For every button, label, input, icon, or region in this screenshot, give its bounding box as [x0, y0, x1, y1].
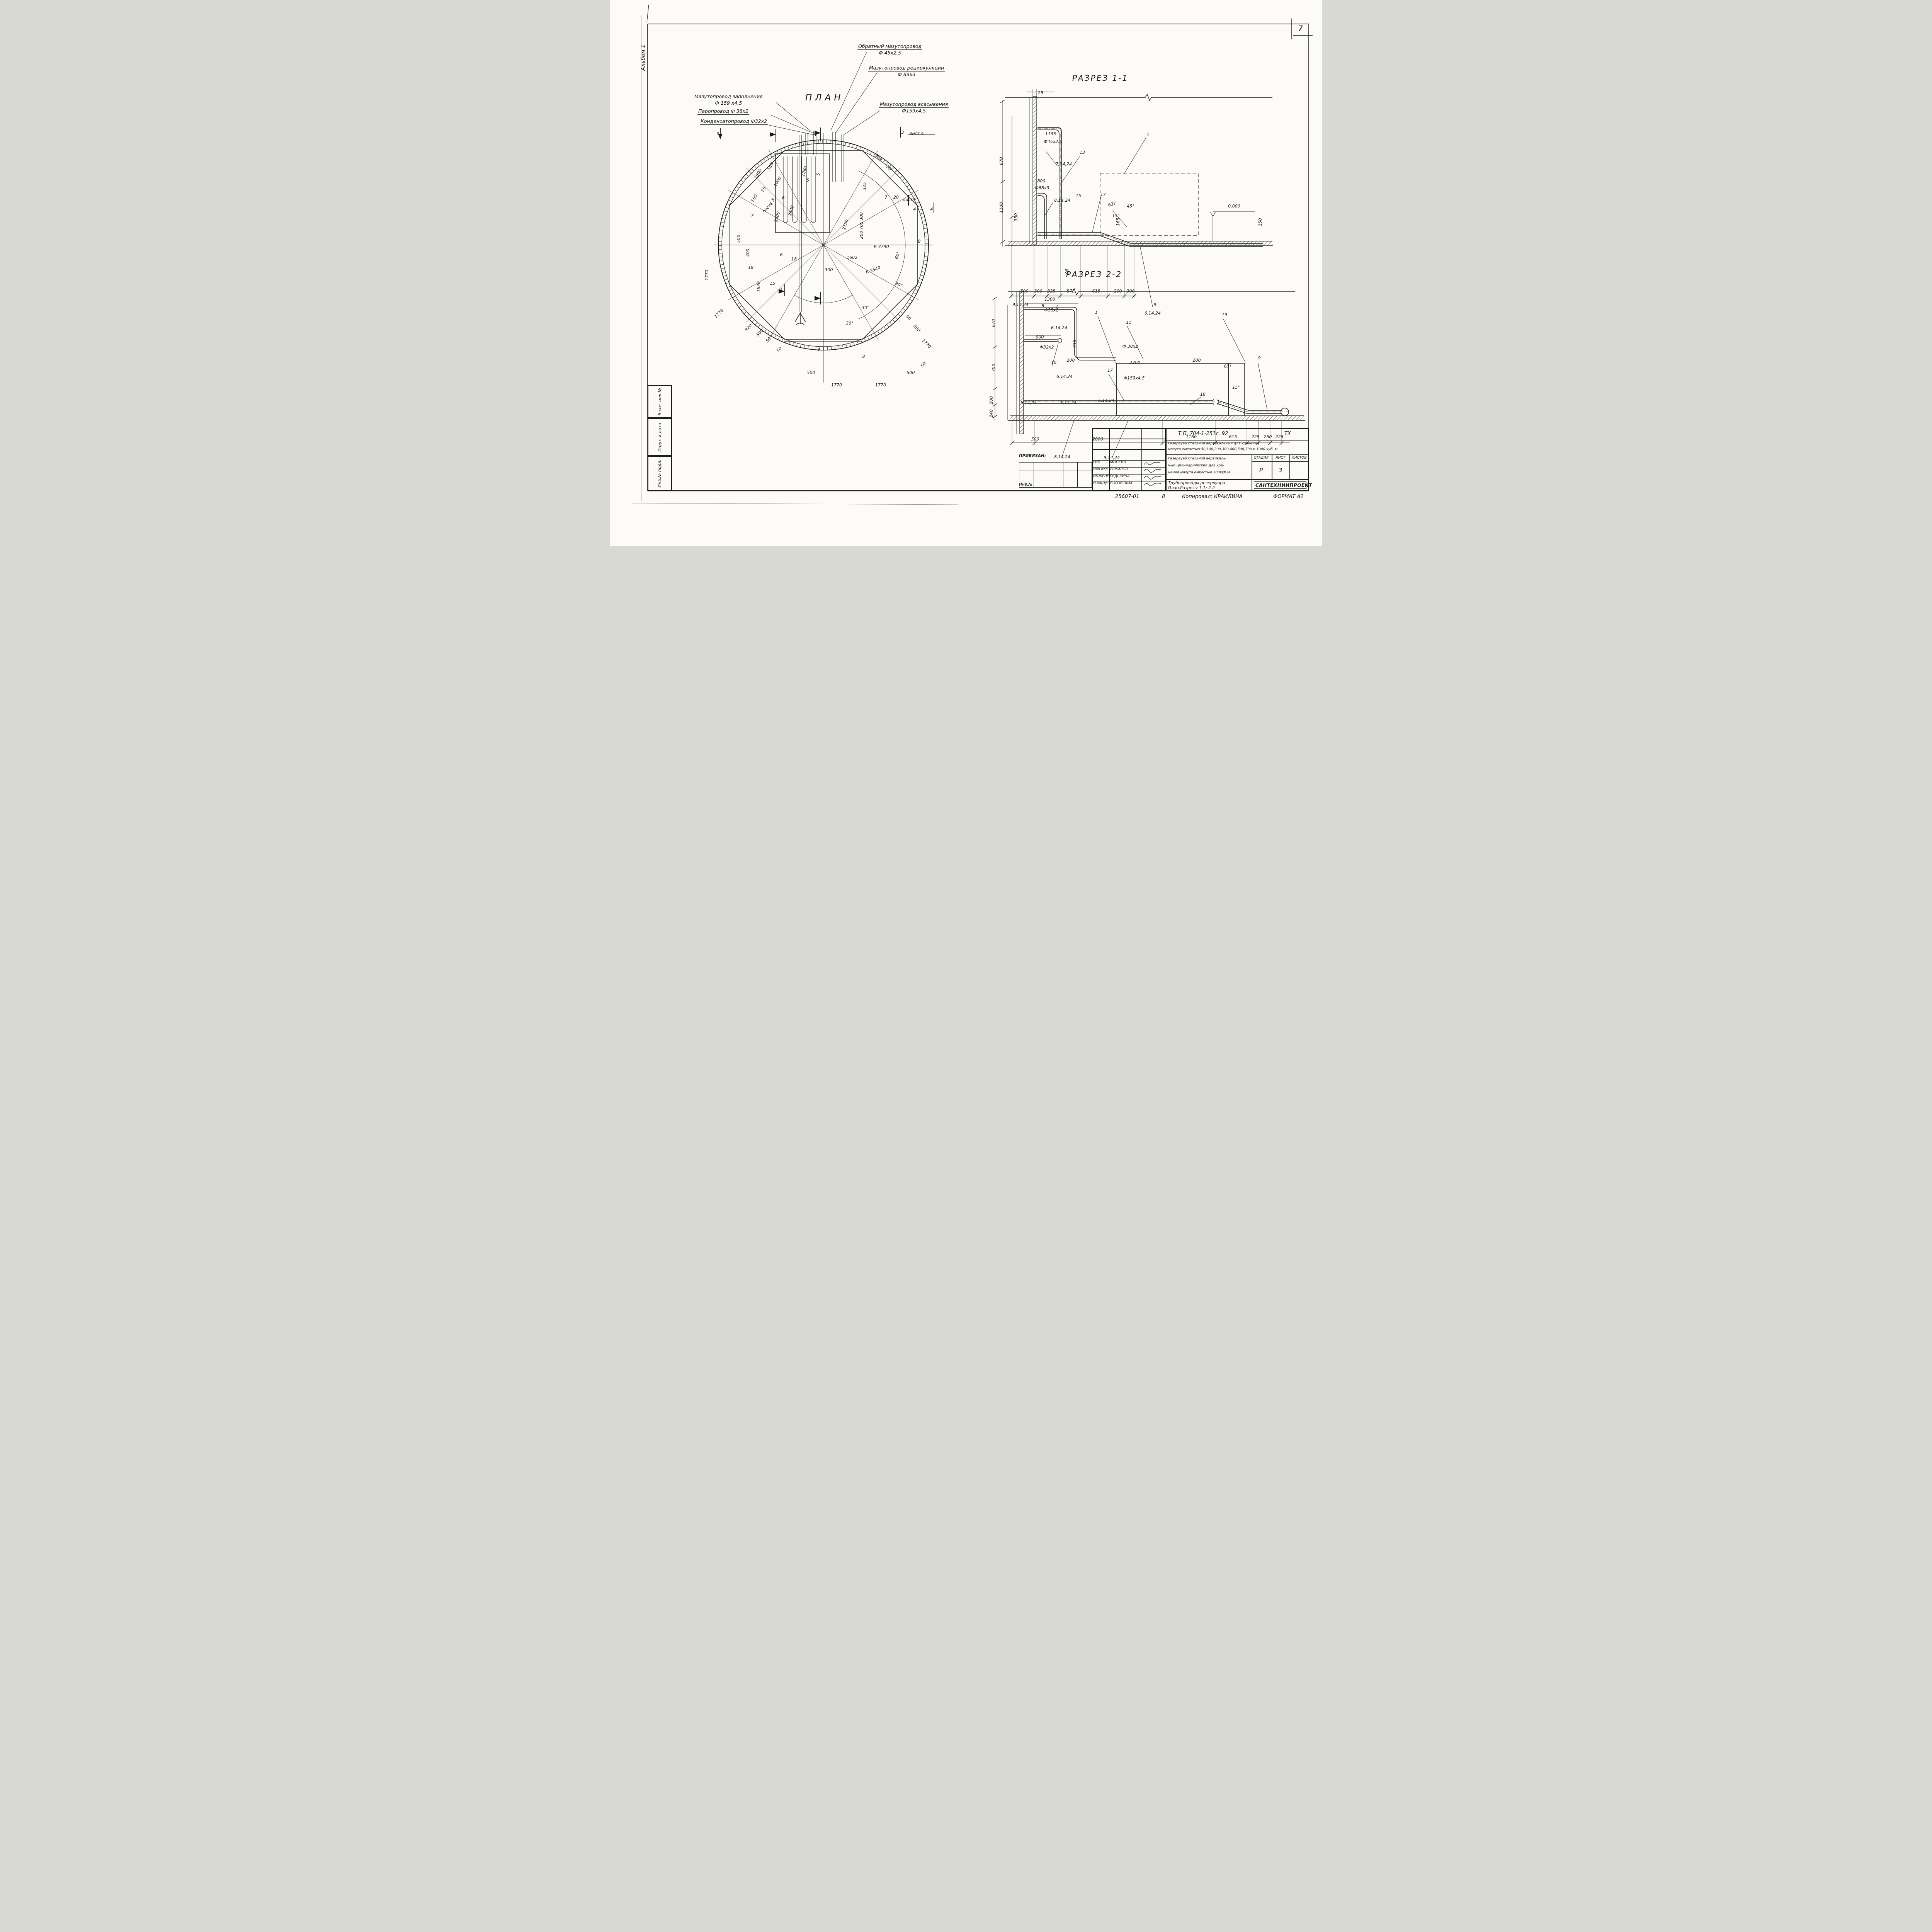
callout-condensate-name: Конденсатопровод Ф32x2: [700, 118, 768, 125]
dim-label: 1000: [772, 176, 782, 188]
dim-label: 1770: [704, 270, 709, 281]
dim-label: 200: [1193, 358, 1201, 363]
dim-label: 2: [770, 132, 773, 137]
dim-label: 30°: [895, 281, 903, 288]
dim-label: 300: [825, 267, 833, 272]
album-label: Альбом 1: [640, 44, 646, 71]
dim-label: 11: [1126, 320, 1131, 325]
dim-label: 4: [913, 207, 916, 212]
dim-label: 300: [1127, 289, 1135, 294]
dim-label: 200: [1067, 358, 1075, 363]
organization-name: САНТЕХНИИПРОЕКТ: [1255, 483, 1312, 488]
dim-label: 500: [807, 370, 815, 375]
dim-label: Ф159x4,5: [1124, 376, 1145, 381]
callout-steam-name: Паропровод Ф 38x2: [697, 108, 749, 115]
dim-label: 1620: [756, 281, 761, 292]
dim-label: 240: [989, 410, 994, 418]
plan-dimension-labels: 5001000126051600151505лист47300503253007…: [704, 130, 933, 388]
dim-label: 335: [1048, 289, 1056, 294]
dim-label: 736: [1072, 340, 1077, 348]
dim-label: 200: [989, 396, 994, 405]
dim-label: 920: [744, 323, 753, 332]
dim-label: 800: [1037, 179, 1046, 184]
dim-label: 15°: [1112, 213, 1120, 218]
dim-label: Ф 38x2: [1122, 344, 1138, 349]
dim-label: 17: [1100, 192, 1106, 197]
footer-order-number: 25607-01: [1115, 494, 1139, 500]
dim-label: 2: [780, 287, 782, 292]
dim-label: 200: [859, 231, 864, 239]
dim-label: 8: [862, 354, 865, 359]
dim-label: 3: [901, 130, 904, 135]
dim-label: 500: [1020, 289, 1029, 294]
doc-type: ТХ: [1284, 431, 1291, 437]
dim-label: лист4: [761, 201, 774, 214]
section1-dimension-labels: 251135Ф45x2,57,14,2413800Ф88x38,14,24151…: [999, 90, 1263, 309]
dim-label: 2156: [842, 219, 849, 230]
dim-label: 150: [1258, 218, 1263, 226]
subobject-line2: ный цилиндрический для хра-: [1168, 464, 1224, 468]
dim-label: 15: [760, 186, 767, 193]
callout-recirculation-name: Мазутопровод рециркуляции: [868, 65, 945, 71]
dim-label: 350: [1014, 213, 1019, 221]
dim-label: 45°: [1127, 204, 1134, 209]
drawing-sheet: 5001000126051600151505лист47300503253007…: [610, 0, 1322, 546]
dim-label: 6: [782, 196, 785, 201]
dim-label: 325: [862, 182, 867, 190]
person-role: ИНЖЕНЕР: [1093, 474, 1111, 478]
dim-label: 300: [1034, 289, 1043, 294]
dim-label: 50: [765, 336, 772, 344]
object-title-line1: Резервуар стальной вертикальный для хран…: [1168, 442, 1259, 446]
dim-label: 6,14,24: [1056, 374, 1073, 379]
doc-code: Т.П. 704-1-251с. 92: [1178, 431, 1228, 437]
section1-title: РАЗРЕЗ 1-1: [1072, 73, 1128, 83]
sheet-header: ЛИСТ: [1276, 456, 1285, 460]
side-stamp-cell-2: Подп. и дата: [648, 418, 672, 456]
dim-label: 500: [755, 328, 765, 338]
dim-label: 1770: [921, 338, 932, 349]
sheets-header: ЛИСТОВ: [1292, 456, 1307, 460]
dim-label: Ф38x2: [1044, 308, 1059, 313]
side-stamp-label-1: Взам. инв.№: [657, 388, 662, 415]
dim-label: 1: [1095, 310, 1098, 315]
dim-label: 15: [770, 281, 775, 286]
dim-label: 1135: [1045, 131, 1056, 136]
callout-condensate-line: Конденсатопровод Ф32x2: [700, 118, 768, 125]
person-name: РЕДЬКИНА: [1110, 474, 1129, 478]
stage-value: Р: [1259, 467, 1263, 474]
dim-label: 165: [1116, 218, 1121, 226]
dim-label: 5,14,24: [1098, 398, 1114, 403]
dim-label: 1300: [1044, 297, 1055, 302]
side-stamp-label-3: Инв.№ подл.: [657, 459, 662, 487]
dim-label: 7: [885, 195, 888, 200]
side-stamp-cell-1: Взам. инв.№: [648, 385, 672, 418]
footer-format: ФОРМАТ А2: [1273, 494, 1304, 500]
callout-filling-name: Мазутопровод заполнения: [694, 94, 764, 100]
callout-return-size: Ф 45x2,5: [857, 50, 922, 56]
dim-label: 700: [859, 222, 864, 230]
stage-header: СТАДИЯ: [1254, 456, 1269, 460]
dim-label: 8: [918, 239, 921, 244]
dim-label: 6,14,24: [1145, 311, 1161, 316]
callout-recirculation-size: Ф 89x3: [868, 71, 945, 77]
object-title-line2: мазута емкостью 50,100,200,300,400,500,7…: [1168, 447, 1279, 451]
dim-label: 500: [766, 162, 775, 171]
person-name: МЫСКИН: [1110, 461, 1126, 464]
dim-label: 15: [1076, 193, 1081, 198]
side-stamp-label-2: Подп. и дата: [657, 423, 662, 452]
dim-label: 637: [1107, 201, 1117, 208]
dim-label: 1: [815, 132, 817, 137]
callout-return-name: Обратный мазутопровод: [857, 43, 922, 50]
drawing-title-line1: Трубопроводы резервуара: [1168, 481, 1225, 485]
dim-label: 60°: [894, 251, 901, 260]
dim-label: 900: [1036, 335, 1044, 340]
callout-suction-name: Мазутопровод всасывания: [879, 101, 949, 108]
dim-label: 500: [1031, 437, 1039, 442]
dim-label: 1: [1147, 132, 1150, 137]
dim-label: 700: [991, 364, 996, 372]
subobject-line1: Резервуар стальной вертикаль-: [1168, 457, 1226, 461]
dim-label: 5,14,24: [1020, 400, 1037, 405]
dim-label: 1: [815, 296, 817, 301]
dim-label: 15°: [1232, 385, 1240, 390]
dim-label: 8,14,24: [1054, 198, 1070, 203]
dim-label: 18: [791, 257, 797, 262]
dim-label: 2300: [1129, 360, 1140, 365]
dim-label: 19: [1222, 312, 1227, 317]
dim-label: 1100: [999, 202, 1004, 213]
drawing-title-line2: План.Разрезы 1-1; 2-2: [1168, 486, 1215, 490]
dim-label: 9: [1258, 355, 1261, 361]
dim-label: 5: [807, 178, 810, 183]
dim-label: 30°: [846, 321, 854, 326]
dim-label: R 3540: [865, 265, 881, 275]
sheet-value: 3: [1279, 467, 1282, 474]
dim-label: Ф45x2,5: [1044, 139, 1062, 144]
person-role: ГИП: [1093, 461, 1100, 464]
dim-label: 10: [1051, 360, 1056, 365]
callout-return-line: Обратный мазутопровод Ф 45x2,5: [857, 43, 922, 56]
dim-label: 300: [874, 153, 883, 162]
dim-label: 1770: [875, 383, 886, 388]
dim-label: 5,14,24: [1060, 400, 1077, 405]
dim-label: 500: [736, 235, 741, 243]
callout-steam-line: Паропровод Ф 38x2: [697, 108, 749, 115]
dim-label: 25: [1038, 90, 1043, 95]
dim-label: 5: [815, 172, 821, 176]
dim-label: 20: [893, 195, 899, 200]
dim-label: 3: [717, 131, 719, 136]
dim-label: 6,14,24: [1051, 325, 1067, 330]
dim-label: 670: [999, 157, 1004, 165]
dim-label: R 3790: [874, 244, 889, 249]
dim-label: 300: [859, 213, 864, 221]
callout-filling-size: Ф 159 x4,5: [694, 100, 764, 106]
person-name: ЕРМИЛОВ: [1110, 468, 1128, 471]
dim-label: 13: [1080, 150, 1085, 155]
dim-label: 1770: [713, 308, 724, 319]
dim-label: Ф32x2: [1040, 345, 1054, 350]
dim-label: 50: [776, 346, 783, 353]
linked-label: ПРИВЯЗАН:: [1019, 454, 1046, 458]
dim-label: 615: [1092, 289, 1100, 294]
dim-label: лист4: [902, 197, 916, 202]
dim-label: 18: [1200, 392, 1206, 397]
dim-label: 50: [920, 361, 927, 368]
dim-label: 575: [1067, 289, 1075, 294]
dim-label: 1602: [847, 255, 857, 260]
dim-label: 7,14,24: [1056, 162, 1072, 167]
dim-label: 8,14,24: [1054, 454, 1070, 459]
callout-recirculation-line: Мазутопровод рециркуляции Ф 89x3: [868, 65, 945, 77]
dim-label: 9: [1154, 302, 1156, 307]
plan-title: ПЛАН: [805, 93, 844, 103]
section-1-1-linework: [1000, 89, 1273, 307]
dim-label: Ф88x3: [1035, 185, 1049, 190]
dim-label: 9,14,24: [1012, 302, 1029, 307]
person-role: Н.контр.: [1093, 481, 1109, 485]
album-label-box: Альбом 1: [640, 23, 650, 73]
dim-label: 500: [912, 324, 921, 333]
dim-label: 1770: [831, 383, 842, 388]
dim-label: 0,000: [1228, 204, 1240, 209]
dim-label: 8: [1042, 303, 1044, 308]
dim-label: 30°: [862, 305, 869, 310]
dim-label: лист 4: [909, 131, 923, 136]
dim-label: 50: [905, 314, 912, 321]
callout-suction-size: Ф159x4,5: [879, 108, 949, 114]
dim-label: 6: [780, 252, 783, 257]
side-stamp-cell-3: Инв.№ подл.: [648, 456, 672, 491]
footer-copied-by: Копировал: КРАИЛИНА: [1182, 494, 1243, 500]
dim-label: 5: [770, 197, 776, 202]
dim-label: 18: [748, 265, 753, 270]
dim-label: 17: [1107, 368, 1113, 373]
dim-label: 500: [907, 370, 915, 375]
dim-label: 2640: [787, 205, 795, 216]
dim-label: 4: [930, 207, 933, 212]
section2-title: РАЗРЕЗ 2-2: [1066, 270, 1122, 279]
dim-label: 400: [745, 249, 750, 257]
dim-label: 7: [751, 213, 754, 218]
dim-label: 2300: [774, 211, 781, 223]
callout-filling-line: Мазутопровод заполнения Ф 159 x4,5: [694, 94, 764, 106]
dim-label: 670: [991, 319, 996, 327]
page-number: 7: [1298, 24, 1303, 33]
dim-label: 200: [1114, 289, 1122, 294]
dim-label: 150: [750, 194, 759, 203]
person-role: Нач.отд.: [1093, 468, 1109, 471]
person-name: БОРОВСКИХ: [1110, 481, 1133, 485]
subobject-line3: нения мазута емкостью 300куб.м: [1168, 471, 1230, 474]
footer-sheet-count: 8: [1162, 494, 1165, 500]
dim-label: 9: [818, 347, 820, 352]
callout-suction-line: Мазутопровод всасывания Ф159x4,5: [879, 101, 949, 114]
